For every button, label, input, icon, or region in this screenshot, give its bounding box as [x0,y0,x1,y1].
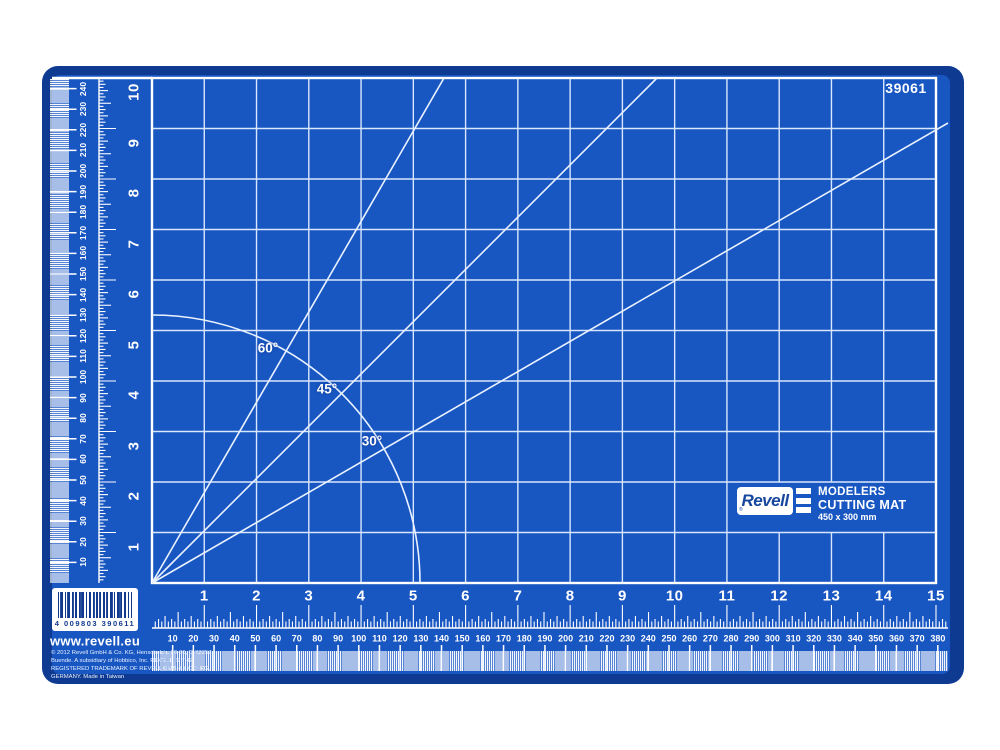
bottom-mm-label: 200 [558,635,573,644]
revell-logo-box: Revell [737,487,793,515]
left-inch-label: 6 [127,290,142,299]
barcode: 4 009803 390611 [52,588,138,631]
bottom-inch-label: 14 [875,588,893,603]
bottom-inch-label: 15 [927,588,945,603]
left-inch-label: 5 [127,340,142,349]
left-mm-label: 110 [79,350,88,364]
left-mm-label: 170 [79,226,88,240]
left-mm-label: 220 [79,123,88,137]
bottom-inch-label: 4 [357,588,366,603]
left-inch-label: 3 [127,441,142,450]
bottom-mm-label: 270 [703,635,718,644]
bottom-mm-label: 330 [827,635,842,644]
logo-line-size: 450 x 300 mm [818,513,877,522]
left-mm-label: 100 [79,370,88,384]
left-mm-label: 190 [79,185,88,199]
bottom-mm-label: 100 [351,635,366,644]
bottom-mm-label: 240 [641,635,656,644]
left-inch-label: 1 [127,542,142,551]
bottom-mm-label: 220 [599,635,614,644]
left-mm-label: 30 [79,516,88,525]
logo-stripe-icon [796,498,811,504]
left-mm-label: 80 [79,413,88,422]
bottom-mm-label: 150 [455,635,470,644]
legal-text-line: © 2012 Revell GmbH & Co. KG, Henschelstr… [51,651,159,657]
bottom-inch-label: 1 [200,588,209,603]
bottom-mm-label: 40 [230,635,240,644]
bottom-mm-label: 210 [579,635,594,644]
left-mm-label: 160 [79,246,88,260]
bottom-mm-label: 170 [496,635,511,644]
bottom-mm-label: 370 [910,635,925,644]
logo-stripe-icon [796,488,811,494]
angle-label-30: 30° [362,434,382,448]
bottom-inch-label: 11 [718,588,735,603]
bottom-mm-label: 50 [250,635,260,644]
left-inch-label: 10 [127,83,142,101]
left-mm-label: 180 [79,205,88,219]
left-mm-label: 20 [79,537,88,546]
bottom-inch-label: 3 [304,588,313,603]
bottom-inch-label: 8 [566,588,575,603]
left-mm-label: 50 [79,475,88,484]
bottom-mm-label: 140 [434,635,449,644]
left-mm-label: 60 [79,455,88,464]
bottom-mm-label: 360 [889,635,904,644]
registered-trademark-mark: ® [739,507,743,513]
bottom-mm-label: 20 [188,635,198,644]
logo-line-cutting-mat: CUTTING MAT [818,499,906,512]
logo-stripe-icon [796,507,811,513]
logo-line-modelers: MODELERS [818,487,886,499]
bottom-mm-label: 230 [620,635,635,644]
bottom-mm-label: 80 [312,635,322,644]
bottom-mm-label: 90 [333,635,343,644]
bottom-mm-label: 340 [848,635,863,644]
left-mm-label: 230 [79,102,88,116]
bottom-mm-label: 320 [806,635,821,644]
bottom-mm-label: 30 [209,635,219,644]
bottom-inch-label: 2 [252,588,261,603]
left-inch-label: 8 [127,189,142,198]
bottom-mm-label: 130 [413,635,428,644]
barcode-bars-icon [58,592,132,618]
left-mm-label: 120 [79,329,88,343]
bottom-mm-label: 10 [168,635,178,644]
bottom-mm-label: 380 [930,635,945,644]
legal-text-line: GERMANY. Made in Taiwan [51,675,159,681]
bottom-inch-label: 7 [513,588,522,603]
bottom-inch-label: 9 [618,588,627,603]
left-mm-label: 140 [79,288,88,302]
bottom-mm-label: 290 [744,635,759,644]
left-mm-label: 150 [79,267,88,281]
left-mm-label: 210 [79,143,88,157]
left-mm-label: 240 [79,82,88,96]
left-mm-label: 90 [79,393,88,402]
bottom-mm-label: 110 [372,635,387,644]
website-text: www.revell.eu [50,634,140,649]
bottom-mm-label: 350 [868,635,883,644]
left-mm-label: 200 [79,164,88,178]
bottom-mm-label: 180 [517,635,532,644]
cutting-mat-photo: 1234567891011121314151234567891010203040… [0,0,1000,750]
bottom-inch-label: 12 [770,588,788,603]
bottom-mm-label: 300 [765,635,780,644]
bottom-mm-label: 280 [724,635,739,644]
left-mm-label: 130 [79,308,88,322]
bottom-inch-label: 10 [666,588,684,603]
bottom-inch-label: 6 [461,588,470,603]
angle-label-45: 45° [317,382,337,396]
legal-text-line: Buende. A subsidiary of Hobbico, Inc. RE… [51,659,159,665]
bottom-mm-label: 60 [271,635,281,644]
angle-label-60: 60° [258,341,278,355]
legal-text-line: REGISTERED TRADEMARK OF REVELL GMBH & CO… [51,667,159,673]
bottom-mm-label: 70 [292,635,302,644]
left-mm-label: 40 [79,496,88,505]
left-mm-label: 10 [79,558,88,567]
left-mm-label: 70 [79,434,88,443]
bottom-mm-label: 160 [475,635,490,644]
product-number: 39061 [885,81,926,95]
bottom-inch-label: 5 [409,588,418,603]
revell-wordmark: Revell [741,491,788,511]
barcode-digits: 4 009803 390611 [52,619,138,628]
left-inch-label: 2 [127,492,142,501]
bottom-mm-label: 310 [786,635,801,644]
bottom-mm-label: 190 [537,635,552,644]
bottom-mm-label: 260 [682,635,697,644]
left-inch-label: 7 [127,239,142,248]
left-inch-label: 9 [127,138,142,147]
bottom-inch-label: 13 [823,588,841,603]
left-inch-label: 4 [127,391,142,400]
bottom-mm-label: 250 [661,635,676,644]
bottom-mm-label: 120 [393,635,408,644]
